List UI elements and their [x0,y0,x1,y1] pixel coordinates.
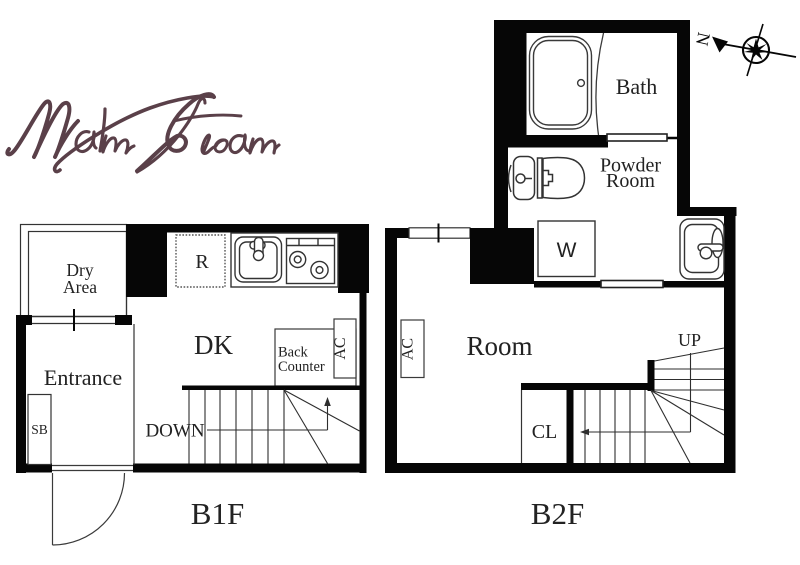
svg-text:Bath: Bath [616,74,658,99]
svg-text:B2F: B2F [531,496,584,531]
svg-text:DK: DK [194,330,233,360]
svg-text:R: R [195,251,209,273]
svg-text:AC: AC [400,338,417,360]
svg-text:Area: Area [63,277,97,297]
svg-text:SB: SB [31,422,48,437]
svg-text:UP: UP [678,330,701,350]
svg-text:N: N [692,30,714,47]
svg-text:Room: Room [606,170,655,192]
svg-text:W: W [557,239,577,262]
svg-text:CL: CL [532,421,558,443]
svg-text:B1F: B1F [191,496,244,531]
svg-text:AC: AC [332,337,349,359]
svg-text:Entrance: Entrance [44,365,122,390]
svg-text:DOWN: DOWN [145,421,204,442]
svg-text:Room: Room [466,331,532,361]
svg-text:Counter: Counter [278,359,325,375]
